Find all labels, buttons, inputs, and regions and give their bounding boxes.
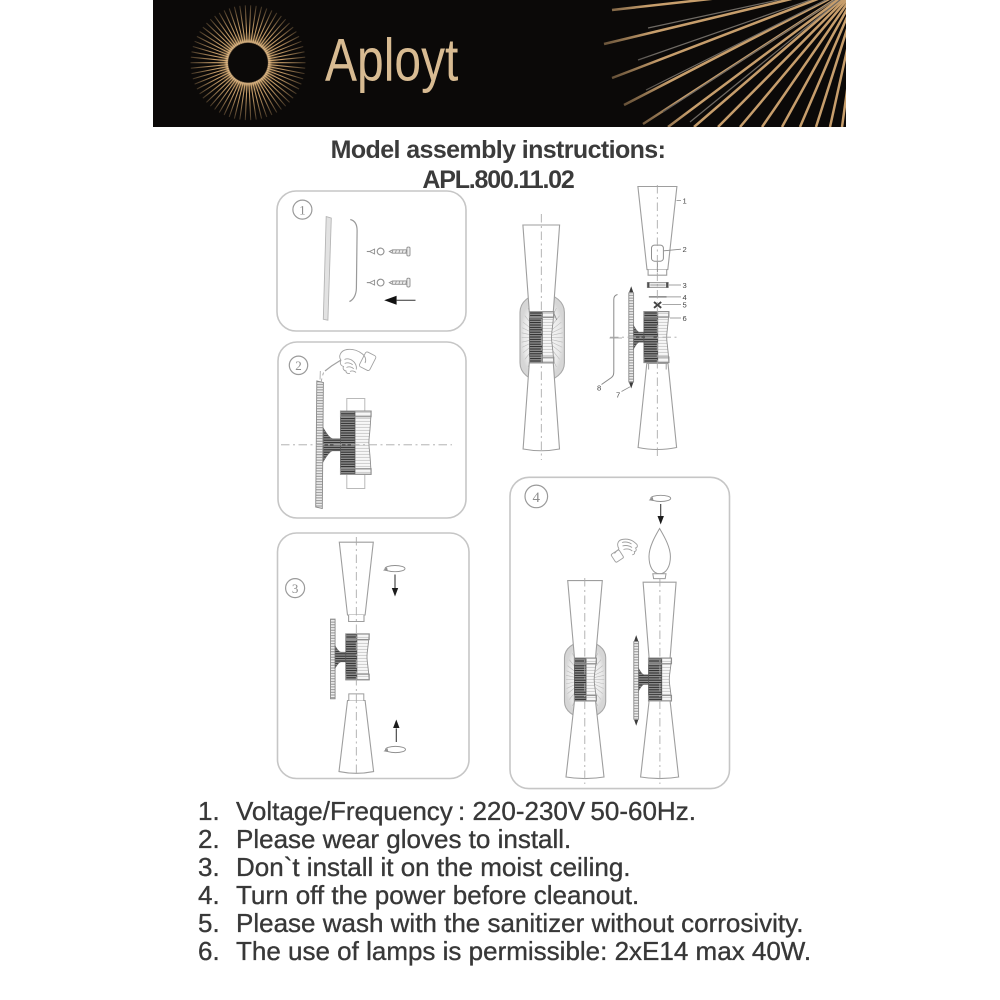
svg-text:4: 4 [533,490,541,506]
svg-text:2: 2 [683,245,687,254]
svg-text:6: 6 [683,314,687,323]
svg-text:8: 8 [597,384,601,393]
svg-text:5: 5 [683,300,687,309]
svg-text:3: 3 [683,281,687,290]
svg-text:1: 1 [299,202,306,217]
svg-text:2: 2 [295,358,302,373]
svg-text:3: 3 [292,581,299,596]
svg-text:7: 7 [616,391,620,400]
svg-text:1: 1 [683,197,687,206]
